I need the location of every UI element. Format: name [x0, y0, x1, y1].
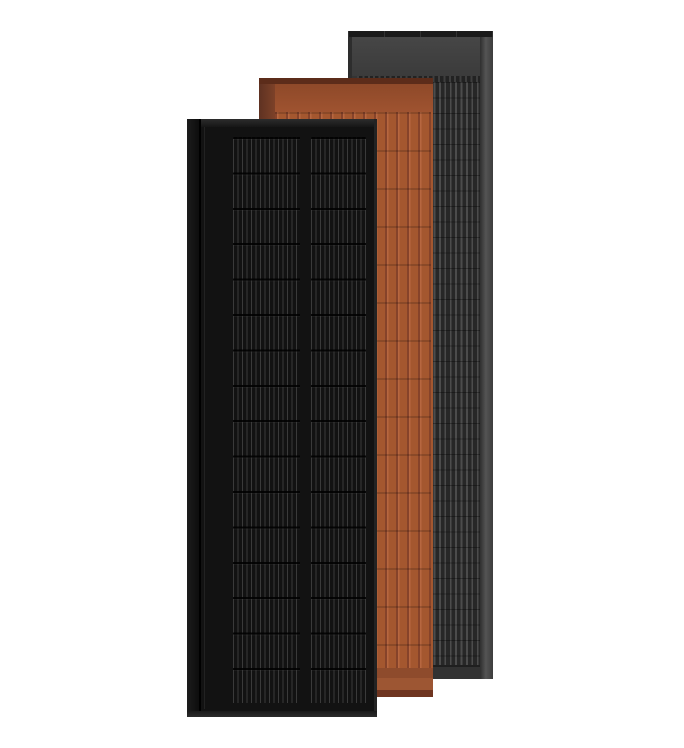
slate-panel-header-flashing — [352, 37, 489, 76]
black-panel-bottom-frame — [187, 711, 377, 717]
black-panel-right-frame — [374, 119, 377, 717]
black-panel-solar-cell-column-right — [311, 137, 366, 703]
black-panel-top-frame — [187, 119, 377, 127]
black-panel-flange-seam — [204, 127, 205, 709]
slate-panel-right-frame — [480, 37, 493, 679]
product-render-stage — [0, 0, 684, 748]
black-panel-left-flange — [187, 119, 201, 711]
terracotta-panel-header-flashing — [275, 84, 433, 112]
solar-panel-all-black — [187, 119, 377, 717]
black-panel-solar-cell-column-left — [233, 137, 300, 703]
